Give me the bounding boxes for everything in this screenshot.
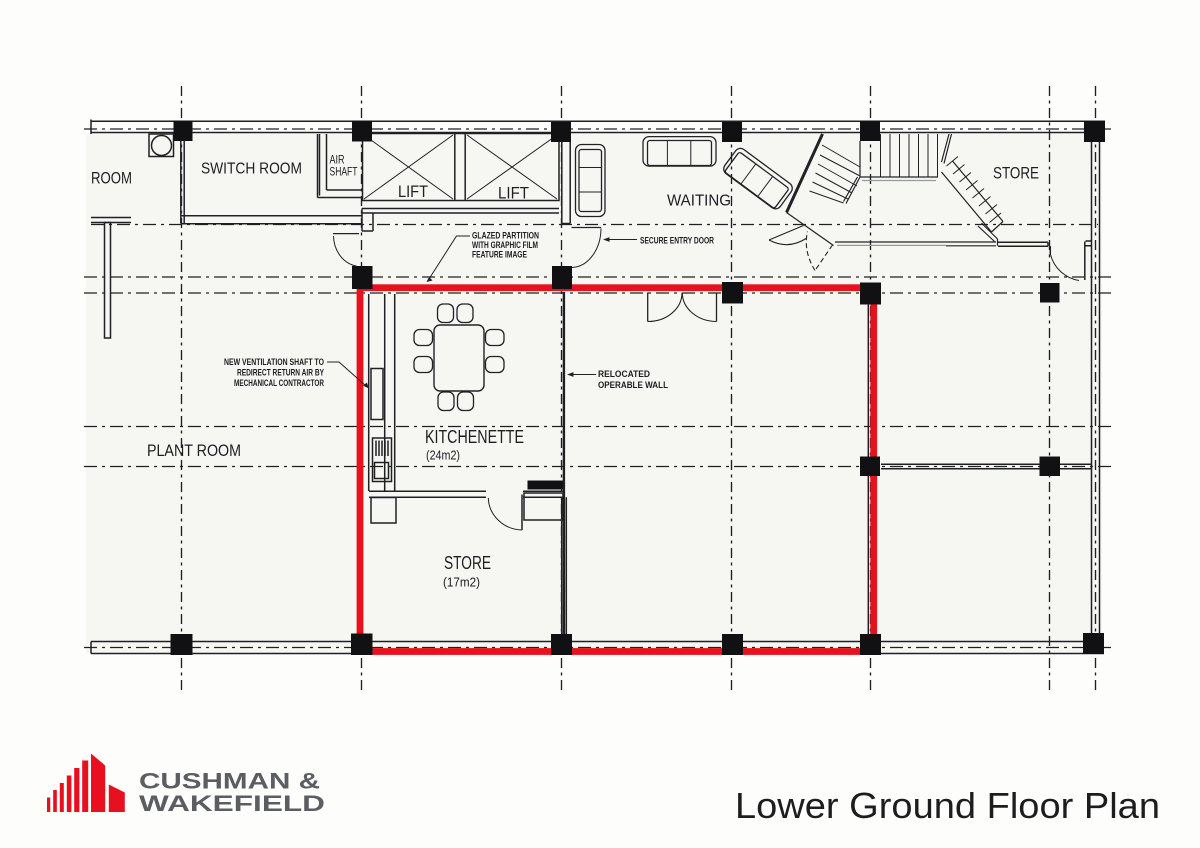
svg-text:STORE: STORE bbox=[444, 553, 491, 573]
svg-text:WAITING: WAITING bbox=[667, 193, 731, 210]
svg-text:WITH GRAPHIC FILM: WITH GRAPHIC FILM bbox=[472, 240, 538, 250]
svg-text:LIFT: LIFT bbox=[498, 185, 529, 203]
svg-text:MECHANICAL CONTRACTOR: MECHANICAL CONTRACTOR bbox=[234, 378, 324, 388]
svg-text:KITCHENETTE: KITCHENETTE bbox=[425, 426, 524, 447]
svg-text:OPERABLE WALL: OPERABLE WALL bbox=[598, 380, 668, 390]
svg-text:(17m2): (17m2) bbox=[443, 576, 480, 590]
svg-text:AIR: AIR bbox=[330, 155, 345, 167]
svg-text:WAKEFIELD: WAKEFIELD bbox=[139, 791, 325, 816]
svg-text:(24m2): (24m2) bbox=[426, 449, 460, 463]
svg-text:SHAFT: SHAFT bbox=[330, 167, 358, 179]
svg-text:SWITCH ROOM: SWITCH ROOM bbox=[201, 161, 302, 178]
svg-text:STORE: STORE bbox=[993, 164, 1039, 183]
svg-text:LIFT: LIFT bbox=[398, 183, 428, 201]
svg-text:RELOCATED: RELOCATED bbox=[598, 369, 650, 379]
svg-text:REDIRECT RETURN AIR BY: REDIRECT RETURN AIR BY bbox=[237, 368, 324, 378]
svg-text:PLANT ROOM: PLANT ROOM bbox=[147, 442, 241, 460]
svg-text:ROOM: ROOM bbox=[91, 169, 132, 188]
svg-text:NEW VENTILATION SHAFT TO: NEW VENTILATION SHAFT TO bbox=[224, 357, 324, 367]
svg-text:FEATURE IMAGE: FEATURE IMAGE bbox=[472, 250, 527, 260]
svg-text:SECURE ENTRY DOOR: SECURE ENTRY DOOR bbox=[640, 236, 714, 246]
svg-text:GLAZED PARTITION: GLAZED PARTITION bbox=[472, 231, 539, 241]
svg-text:Lower Ground Floor Plan: Lower Ground Floor Plan bbox=[735, 785, 1160, 826]
svg-text:CUSHMAN &: CUSHMAN & bbox=[139, 769, 320, 794]
